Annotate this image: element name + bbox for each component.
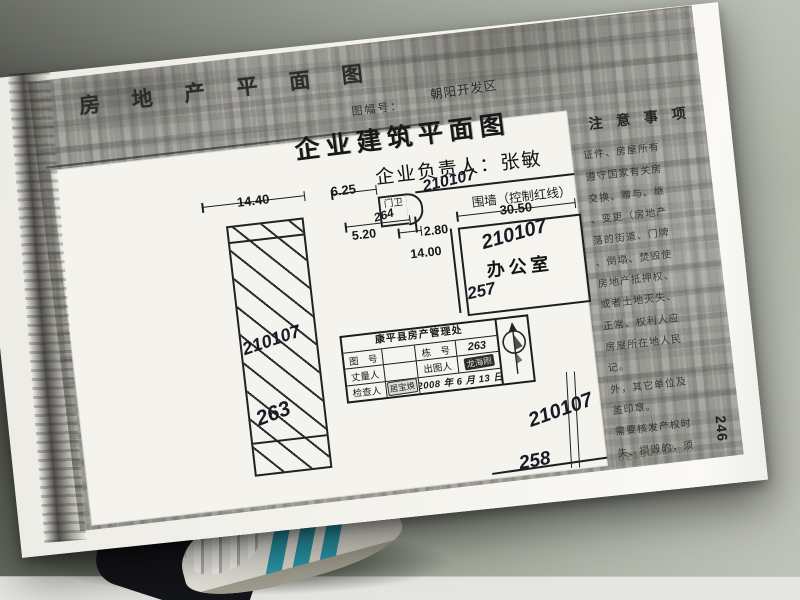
title-block: 康平县房产管理处 图 号 栋 号 263 丈量人 出图人 龙海刚 xyxy=(339,314,536,403)
inspector-name-stamp: 居宝焕 xyxy=(387,378,418,396)
north-arrow-cell xyxy=(497,316,534,383)
dimension-line xyxy=(398,230,422,234)
drawing-panel: 企业建筑平面图 企业负责人：张敏 14.40 210107 263 6.25 门… xyxy=(50,110,608,525)
cell-value: 居宝焕 xyxy=(386,378,421,397)
paper-document: 房 地 产 平 面 图 图幅号： 朝阳开发区 注 意 事 项 证件、房屋所有 遵… xyxy=(0,2,768,558)
title-block-table: 康平县房产管理处 图 号 栋 号 263 丈量人 出图人 龙海刚 xyxy=(342,320,504,402)
sheet-number-label: 图幅号： xyxy=(351,97,404,119)
document-title: 房 地 产 平 面 图 xyxy=(77,56,377,120)
hw-yard-no: 258 xyxy=(517,448,552,475)
drafter-name-stamp: 龙海刚 xyxy=(463,354,494,371)
hw-yard-parcel: 210107 xyxy=(525,389,596,433)
page-number: 246 xyxy=(713,415,731,443)
cell-label: 检查人 xyxy=(347,382,388,402)
building-divider xyxy=(230,234,304,244)
dim-guard-depth: 5.20 xyxy=(351,226,377,243)
notes-title: 注 意 事 项 xyxy=(587,102,691,134)
building-divider xyxy=(253,434,327,444)
sheet-number-value: 朝阳开发区 xyxy=(429,74,499,103)
dim-gate-width: 2.80 xyxy=(423,222,449,239)
photocopy-area: 房 地 产 平 面 图 图幅号： 朝阳开发区 注 意 事 项 证件、房屋所有 遵… xyxy=(28,5,744,531)
photo-of-floor-plan-document: 房 地 产 平 面 图 图幅号： 朝阳开发区 注 意 事 项 证件、房屋所有 遵… xyxy=(0,0,800,600)
north-arrow-icon xyxy=(499,319,531,380)
dim-guard-width: 6.25 xyxy=(330,181,357,199)
dim-office-depth: 14.00 xyxy=(410,244,443,262)
